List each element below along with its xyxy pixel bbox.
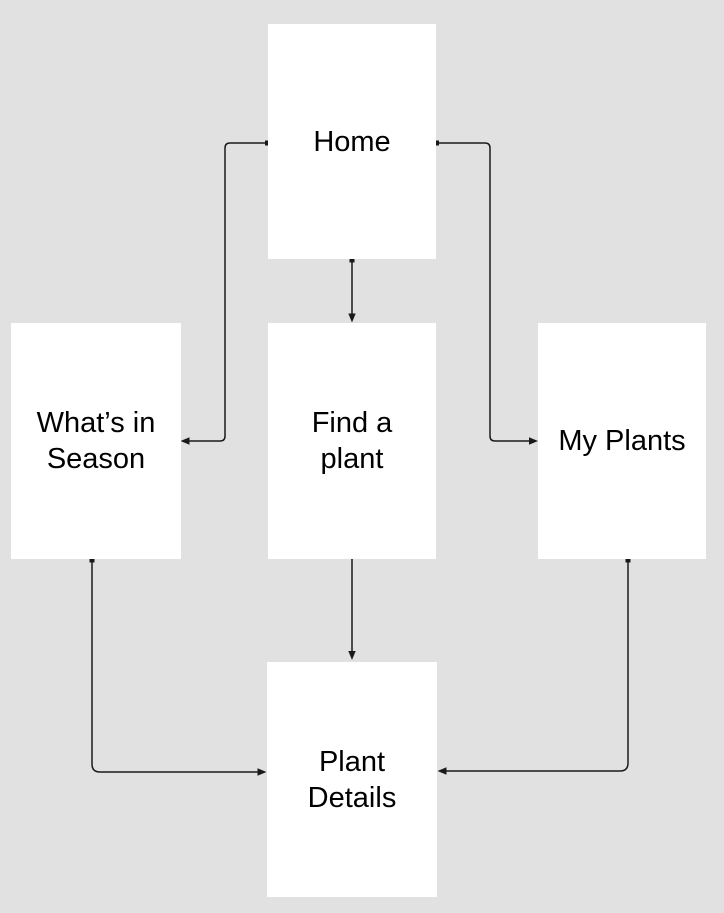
arrowhead-right-icon xyxy=(258,768,267,775)
edge-my-plants-to-plant-details xyxy=(438,558,631,775)
flowchart-canvas: Home What’s in Season Find a plant My Pl… xyxy=(0,0,724,913)
arrowhead-left-icon xyxy=(181,437,190,444)
edge-line xyxy=(437,143,531,441)
node-plant-details-label: Plant Details xyxy=(296,744,408,816)
edge-line xyxy=(445,560,628,771)
edge-line xyxy=(188,143,268,441)
edge-find-a-plant-to-plant-details xyxy=(348,549,355,661)
node-plant-details[interactable]: Plant Details xyxy=(267,662,437,897)
node-whats-in-season-label: What’s in Season xyxy=(30,405,162,477)
arrowhead-down-icon xyxy=(348,651,355,660)
node-whats-in-season[interactable]: What’s in Season xyxy=(11,323,181,559)
edge-home-to-my-plants xyxy=(434,141,538,445)
edge-home-to-find-a-plant xyxy=(348,258,355,323)
arrowhead-left-icon xyxy=(438,767,447,774)
node-home[interactable]: Home xyxy=(268,24,436,259)
arrowhead-right-icon xyxy=(529,437,538,444)
edge-line xyxy=(92,560,259,772)
node-my-plants-label: My Plants xyxy=(558,423,685,459)
node-my-plants[interactable]: My Plants xyxy=(538,323,706,559)
edge-home-to-whats-in-season xyxy=(181,141,271,445)
arrowhead-down-icon xyxy=(348,314,355,323)
node-home-label: Home xyxy=(313,124,390,160)
node-find-a-plant-label: Find a plant xyxy=(304,405,400,477)
edge-whats-in-season-to-plant-details xyxy=(90,558,267,776)
node-find-a-plant[interactable]: Find a plant xyxy=(268,323,436,559)
